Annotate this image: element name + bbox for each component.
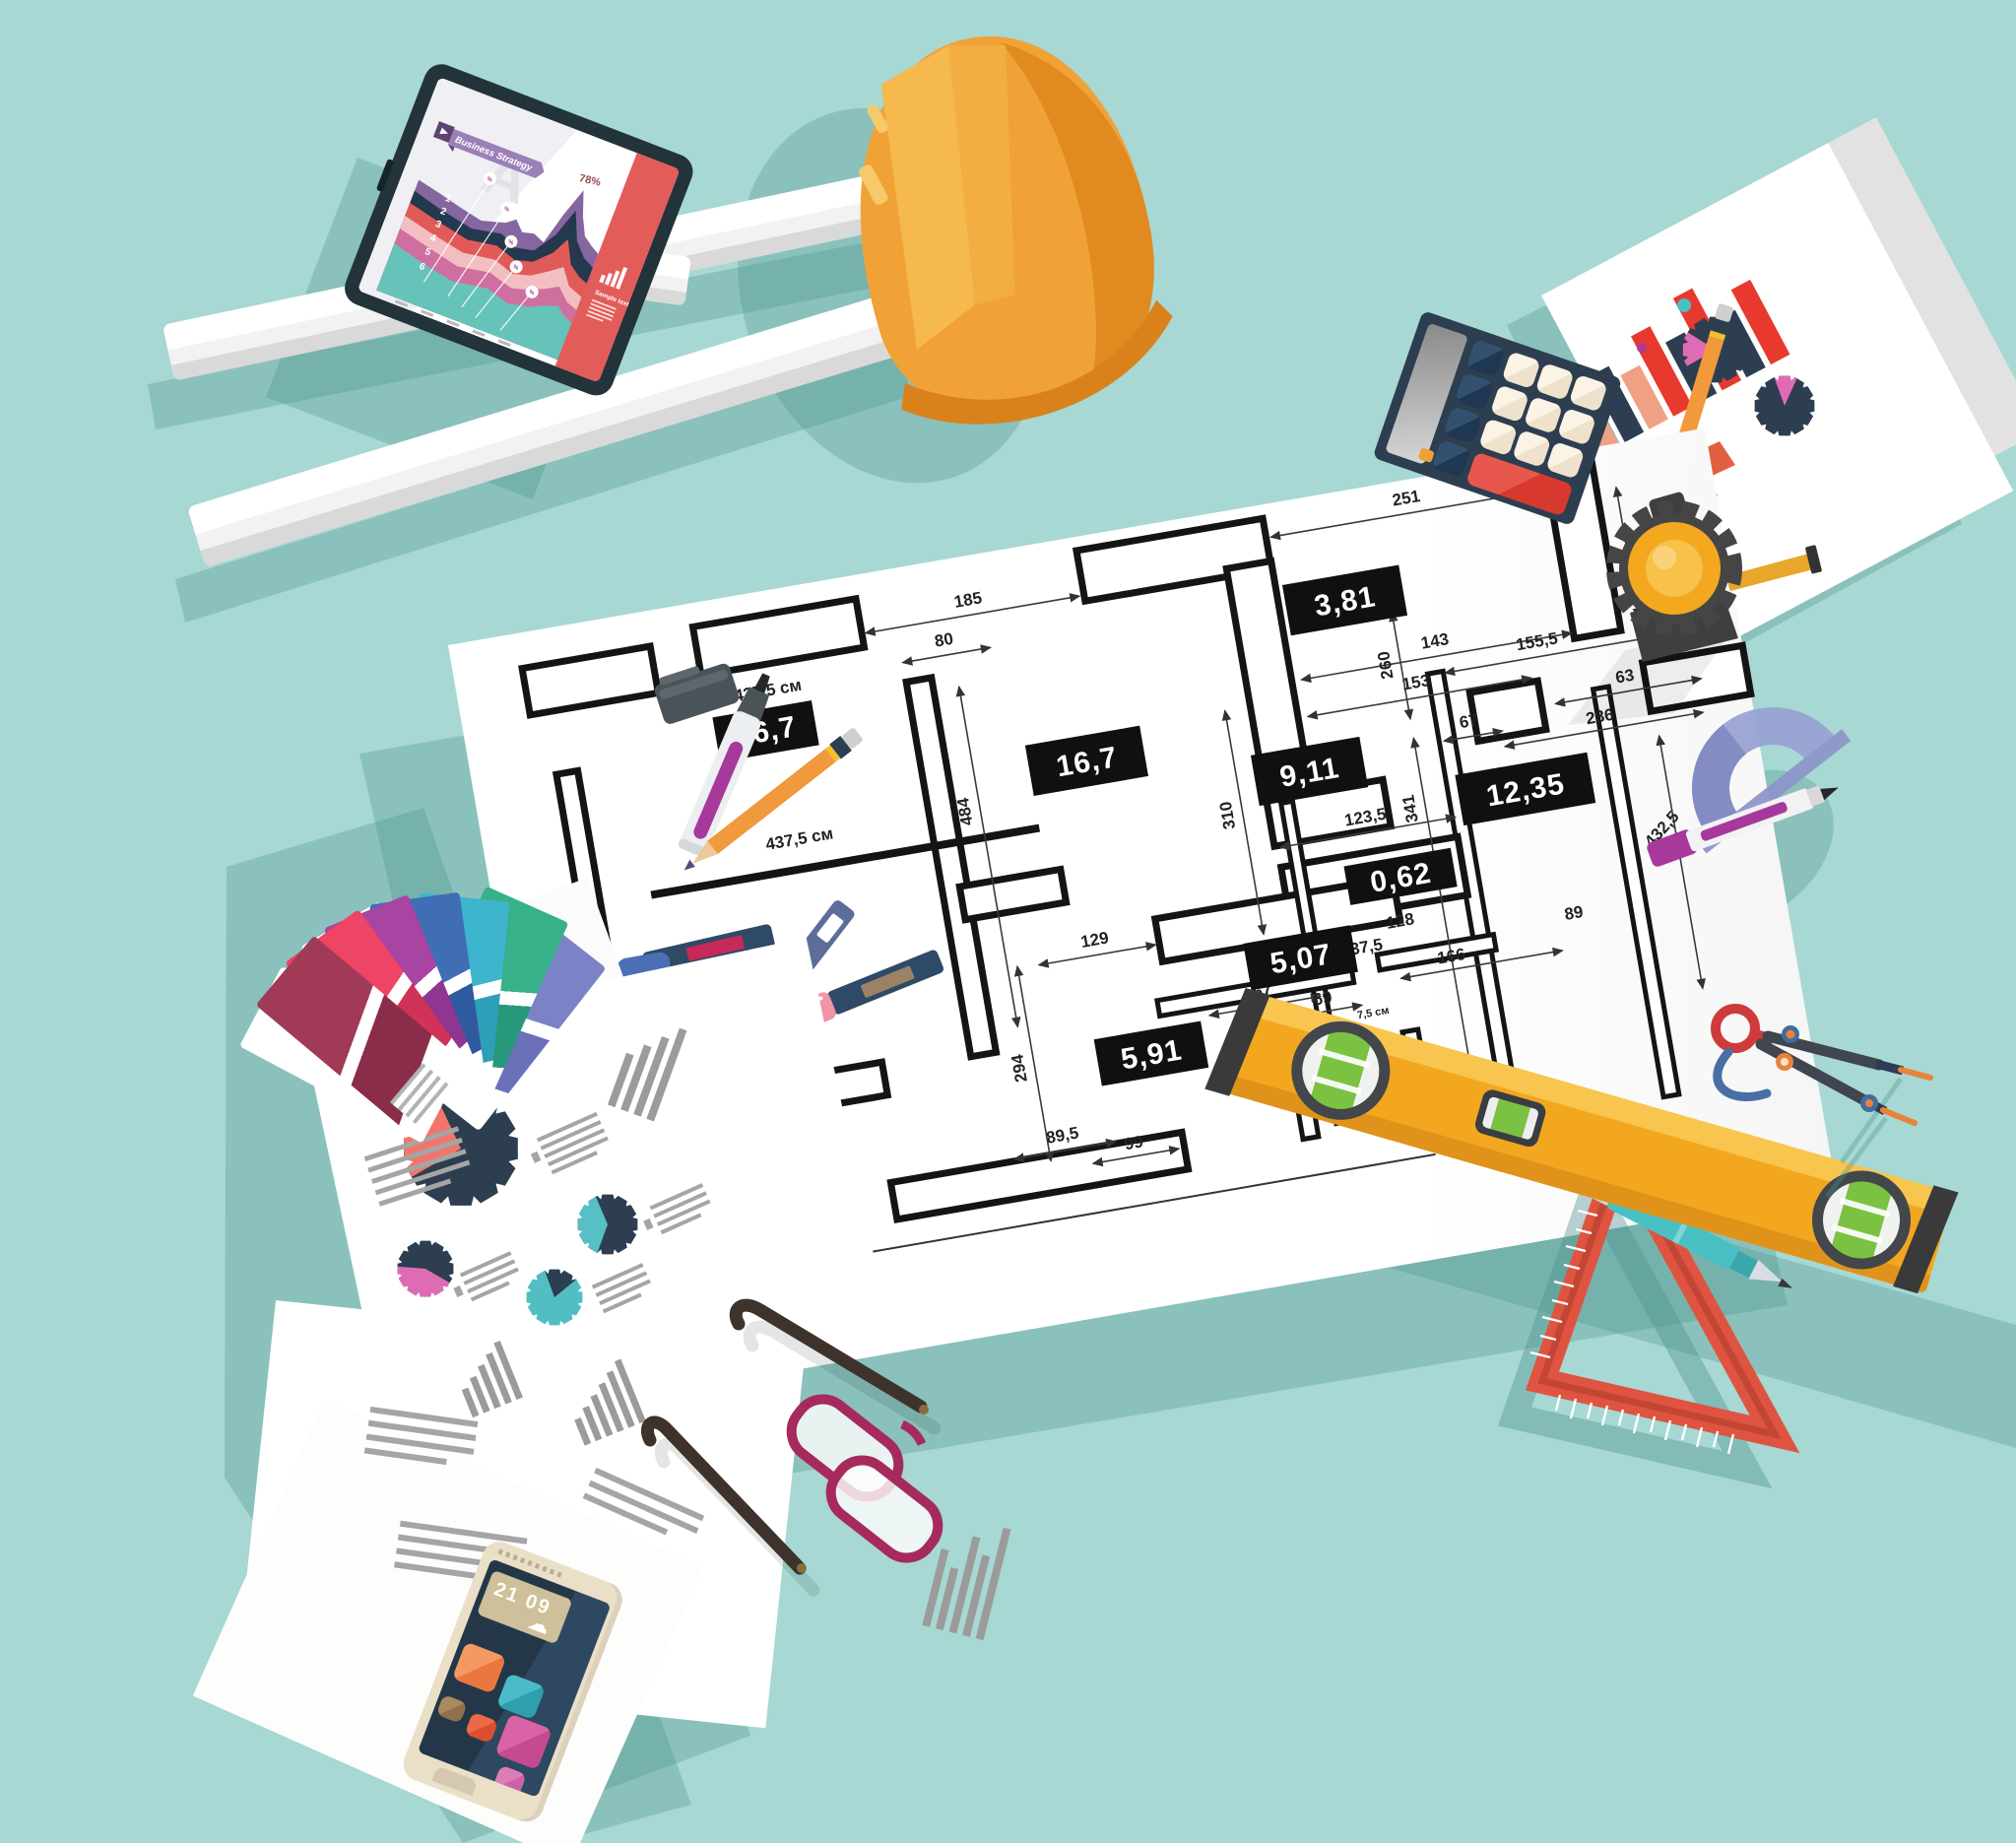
highlighter-pen bbox=[1646, 775, 1844, 868]
workspace-illustration: A 1 2 3 4 5 6 bbox=[0, 0, 2016, 1843]
protractor-group bbox=[0, 0, 2016, 1843]
